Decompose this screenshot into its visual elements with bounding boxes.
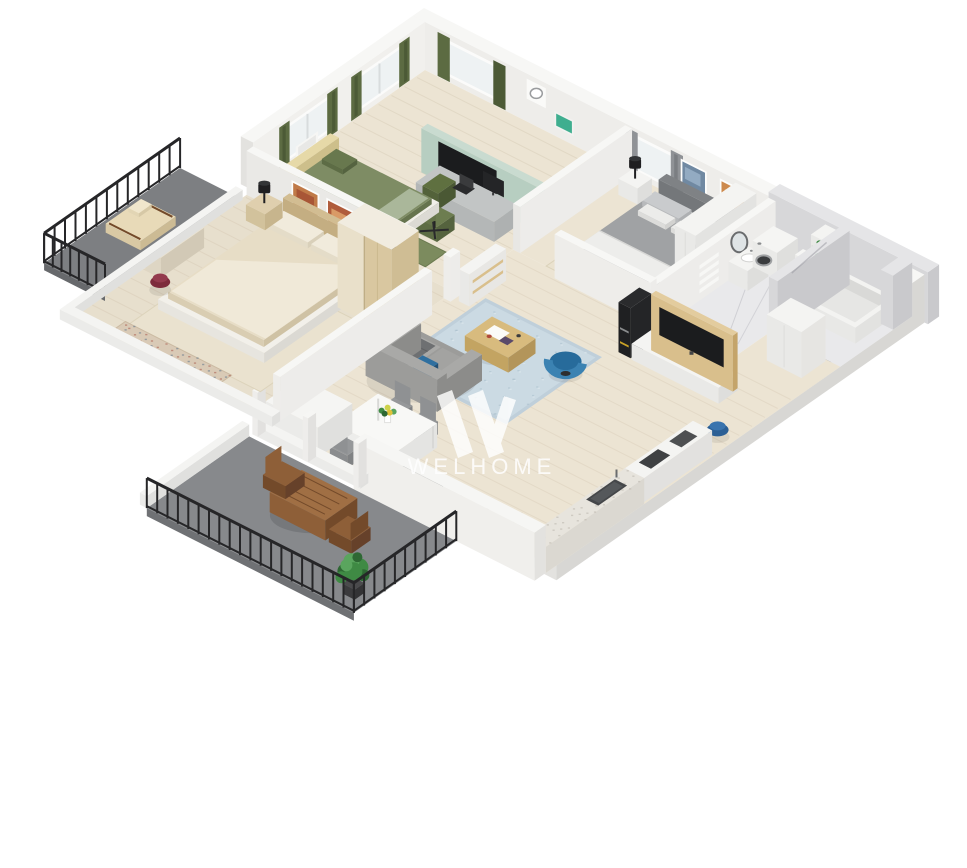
floorplan-3d-render: WELHOME	[0, 0, 967, 868]
watermark-text: WELHOME	[408, 454, 557, 479]
floorplan-scene: WELHOME	[0, 0, 967, 868]
apartment-model	[44, 8, 939, 621]
